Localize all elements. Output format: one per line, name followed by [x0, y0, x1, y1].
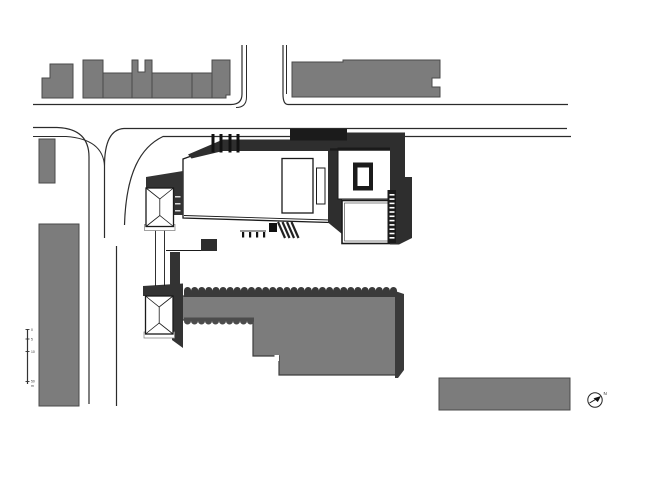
context-building-top-right: [292, 60, 440, 97]
north-label: N: [604, 391, 607, 396]
south-building: [182, 287, 404, 378]
context-building-top-left: [42, 64, 73, 98]
context-building-west-small: [39, 139, 55, 183]
context-building-bottom-right: [439, 378, 570, 410]
se-annex-roof: [342, 201, 393, 244]
south-entry-stairs: [240, 222, 299, 238]
terrace-shadow-block: [201, 239, 217, 251]
tower-2-shadow-taper: [172, 340, 183, 348]
corridor-east-shadow: [170, 252, 180, 294]
scale-label-5: 5: [31, 338, 33, 342]
south-building-scallop-bottom: [184, 318, 254, 325]
north-shadow-band-darkest: [290, 129, 347, 141]
south-building-corner-notch: [275, 355, 280, 361]
scale-label-10: 10: [31, 350, 35, 354]
context-building-top-row: [83, 60, 230, 98]
scale-label-0: 0: [31, 328, 33, 332]
rooflight-small: [317, 168, 326, 204]
scale-label-50: 50: [31, 380, 35, 384]
scale-unit-label: m: [31, 384, 34, 388]
south-building-east-shadow: [395, 291, 404, 378]
scale-bar: 0 5 10 50 m: [26, 328, 35, 388]
south-building-scallop-top: [184, 287, 397, 297]
tower-1: [145, 171, 184, 231]
rooflight-large: [282, 159, 313, 214]
site-plan-drawing: 0 5 10 50 m N: [0, 0, 650, 486]
south-building-footprint: [182, 296, 396, 375]
north-arrow: N: [588, 391, 607, 407]
tower-1-north-shadow: [146, 171, 183, 188]
site-plan-page: 0 5 10 50 m N: [0, 0, 650, 486]
context-building-west-tall: [39, 224, 79, 406]
link-corridor: [156, 230, 218, 294]
annex-skylight-glass: [358, 168, 370, 187]
main-hall-complex: [183, 129, 412, 245]
